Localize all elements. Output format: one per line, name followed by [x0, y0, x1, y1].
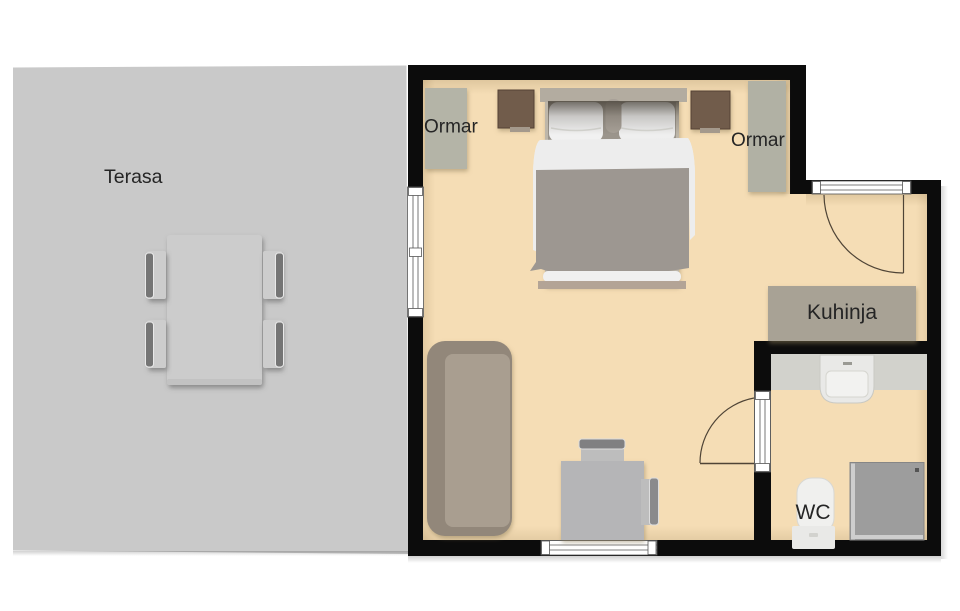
svg-text:Ormar: Ormar: [424, 117, 479, 138]
svg-text:Ormar: Ormar: [731, 130, 786, 151]
svg-text:Terasa: Terasa: [104, 166, 163, 188]
svg-text:WC: WC: [796, 501, 831, 524]
svg-text:Kuhinja: Kuhinja: [807, 301, 877, 324]
